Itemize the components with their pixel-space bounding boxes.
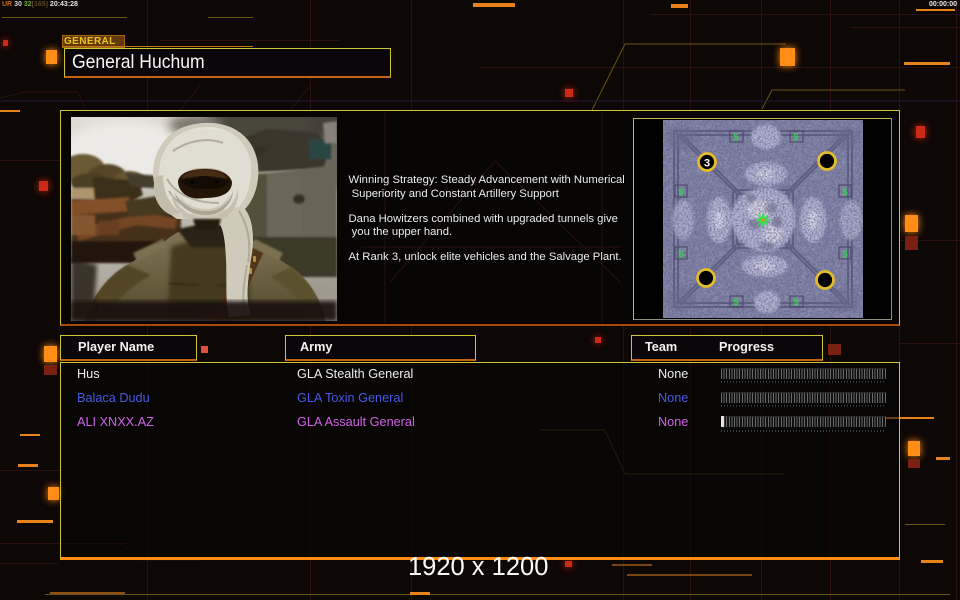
svg-text:$: $: [793, 132, 798, 142]
svg-text:$: $: [842, 249, 847, 259]
svg-text:$: $: [678, 249, 683, 259]
svg-text:$: $: [678, 187, 683, 197]
svg-text:$: $: [793, 297, 798, 307]
svg-text:$: $: [842, 187, 847, 197]
svg-text:3: 3: [704, 158, 710, 170]
svg-text:$: $: [733, 132, 738, 142]
svg-text:$: $: [733, 297, 738, 307]
